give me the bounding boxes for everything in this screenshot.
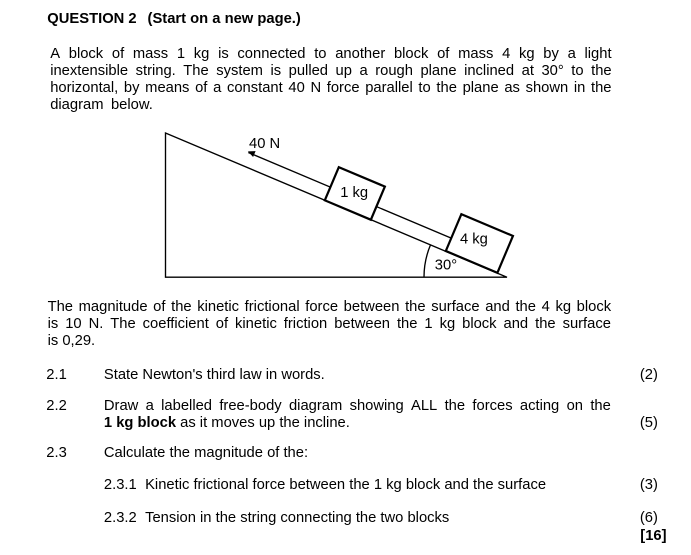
svg-text:40 N: 40 N (249, 136, 280, 152)
svg-text:4 kg: 4 kg (460, 231, 488, 247)
svg-text:1 kg: 1 kg (340, 185, 368, 201)
svg-text:30°: 30° (435, 258, 457, 274)
